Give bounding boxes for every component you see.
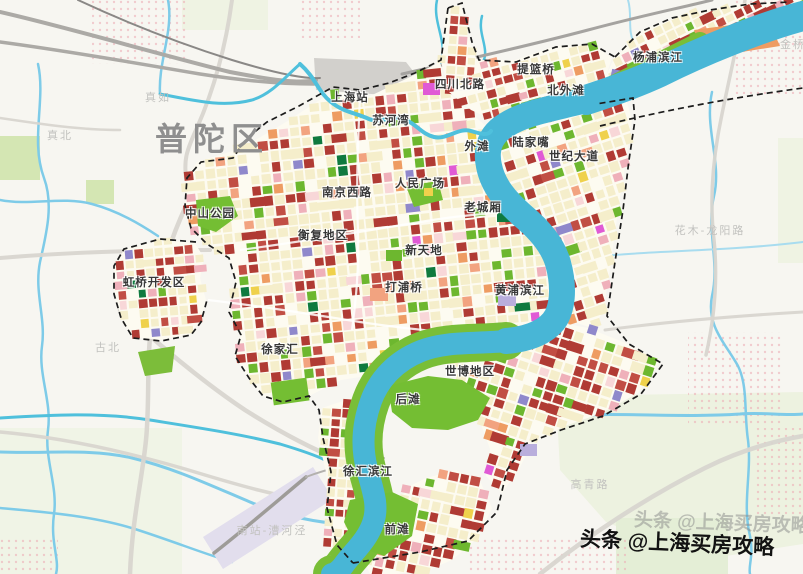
city-planning-map: 普陀区 头条 @上海买房攻略 头条 @上海买房攻略 上海站苏河湾四川北路提篮桥北… <box>0 0 803 574</box>
map-graphic <box>0 0 803 574</box>
